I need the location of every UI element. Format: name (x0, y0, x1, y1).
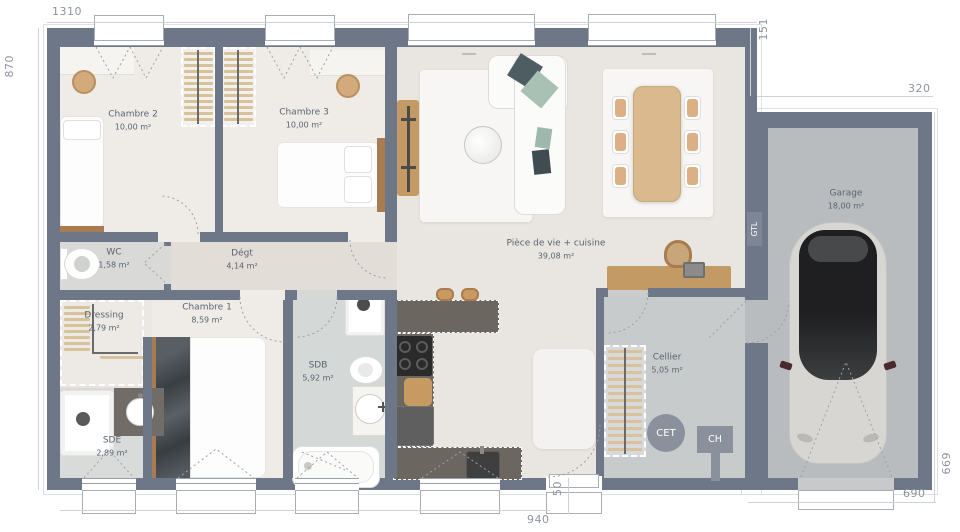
burner (416, 358, 428, 370)
closet-shelf-bar (64, 348, 90, 351)
dining-table (633, 86, 681, 202)
water-heater-cet: CET (647, 414, 685, 452)
wall (385, 300, 397, 478)
wall (596, 288, 604, 478)
ch-label: CH (708, 434, 722, 445)
desk (60, 47, 134, 75)
door-gap (348, 232, 390, 242)
room-name: Chambre 1 (182, 302, 232, 315)
window (265, 15, 335, 41)
dim-height-left: 870 (3, 55, 16, 78)
faucet (480, 446, 484, 454)
boiler-ch: CH (697, 426, 733, 453)
closet-rod (92, 352, 138, 354)
wall (164, 284, 171, 290)
toilet-bowl (74, 256, 90, 272)
laptop (683, 262, 705, 278)
room-area: 10,00 m² (108, 122, 158, 134)
room-name: Pièce de vie + cuisine (507, 238, 606, 251)
door-gap (240, 290, 285, 300)
pillow (344, 146, 372, 173)
dimension-line (568, 478, 569, 514)
wall (283, 300, 293, 478)
dining-chair-seat (687, 133, 698, 151)
wall (200, 232, 348, 242)
room-name: Garage (828, 188, 864, 201)
coffee-table (464, 126, 502, 164)
room-area: 18,00 m² (828, 201, 864, 213)
room-area: 2,89 m² (96, 448, 127, 460)
sink (355, 394, 385, 424)
faucet (382, 402, 384, 412)
boiler-flue (711, 453, 720, 481)
room-label-piece-de-vie: Pièce de vie + cuisine39,08 m² (507, 238, 606, 263)
room-area: 2,79 m² (84, 323, 123, 335)
room-label-chambre3: Chambre 310,00 m² (279, 107, 329, 132)
dimension-line (60, 510, 550, 511)
bathtub-drain (304, 462, 312, 470)
toilet-bowl (358, 363, 373, 377)
room-area: 5,92 m² (302, 373, 333, 385)
closet-shelf-bar (64, 336, 90, 339)
wall (285, 290, 297, 300)
coat-rack-bar (401, 166, 416, 169)
dining-chair-seat (615, 167, 626, 185)
dimension-line (757, 96, 933, 97)
burner (399, 358, 411, 370)
burner (399, 341, 411, 353)
gtl-label: GTL (750, 222, 759, 236)
dressing-opening (143, 300, 152, 337)
room-label-chambre2: Chambre 210,00 m² (108, 109, 158, 134)
room-label-cellier: Cellier5,05 m² (651, 352, 682, 377)
wall (648, 288, 756, 297)
closet-shelf-bar (64, 306, 90, 309)
room-label-sdb: SDB5,92 m² (302, 360, 333, 385)
room-label-dressing: Dressing2,79 m² (84, 310, 123, 335)
sofa-cushion (535, 127, 553, 149)
room-name: Dressing (84, 310, 123, 323)
dim-garage-height-right: 669 (940, 452, 953, 475)
dim-garage-width-bottom: 690 (903, 487, 926, 500)
room-name: WC (98, 247, 129, 260)
dim-door-offset: 50 (551, 481, 564, 496)
wall (164, 242, 171, 246)
dimension-line (934, 112, 935, 502)
floor-plan: CET CH (0, 0, 960, 532)
coat-rack-bar (401, 118, 416, 121)
cutting-board (404, 378, 432, 406)
bay-window (588, 14, 716, 41)
pillow (344, 176, 372, 203)
garage-door (798, 490, 894, 510)
room-area: 1,58 m² (98, 260, 129, 272)
duvet (190, 337, 266, 478)
door-gap (745, 300, 768, 343)
room-area: 39,08 m² (507, 251, 606, 263)
kitchen-counter (393, 447, 522, 480)
wall (604, 288, 608, 297)
closet-shelf-bar (64, 342, 90, 345)
room-label-chambre1: Chambre 18,59 m² (182, 302, 232, 327)
dimension-line (750, 28, 751, 96)
closet-rod (624, 348, 626, 454)
room-label-garage: Garage18,00 m² (828, 188, 864, 213)
wall (215, 47, 223, 232)
sofa-cushion (532, 149, 551, 175)
room-area: 4,14 m² (226, 261, 257, 273)
room-name: SDE (96, 435, 127, 448)
appliance (394, 406, 434, 446)
dimension-line (38, 28, 39, 490)
room-area: 10,00 m² (279, 120, 329, 132)
desk-chair (72, 70, 96, 94)
room-label-degt: Dégt4,14 m² (226, 248, 257, 273)
floor-hall (171, 242, 397, 290)
dim-garage-width-top: 320 (908, 82, 931, 95)
wall (47, 290, 240, 300)
hall-living-opening (385, 242, 397, 290)
wall (337, 290, 397, 300)
dim-offset-right-top: 151 (757, 18, 770, 41)
dimension-line (748, 502, 936, 503)
dining-chair-seat (687, 167, 698, 185)
kitchen-sink (466, 451, 500, 479)
burner (416, 341, 428, 353)
window (94, 15, 164, 41)
wall (47, 232, 158, 242)
gtl-box: GTL (747, 212, 762, 246)
wall (143, 337, 152, 478)
closet-rod (197, 50, 199, 124)
room-name: Chambre 3 (279, 107, 329, 120)
room-name: Dégt (226, 248, 257, 261)
garage-door-opening (798, 478, 894, 490)
room-label-wc: WC1,58 m² (98, 247, 129, 272)
dim-bottom-width: 940 (527, 513, 550, 526)
cet-label: CET (656, 428, 675, 439)
dining-chair-seat (615, 133, 626, 151)
room-label-sde: SDE2,89 m² (96, 435, 127, 460)
room-name: Chambre 2 (108, 109, 158, 122)
wall (385, 47, 397, 242)
door-gap (297, 290, 337, 300)
dimension-line (47, 22, 757, 23)
room-name: Cellier (651, 352, 682, 365)
closet-rod (237, 50, 239, 124)
room-area: 8,59 m² (182, 315, 232, 327)
dining-chair-seat (615, 99, 626, 117)
desk (310, 50, 393, 76)
sideboard-desk (607, 266, 731, 290)
bar-stool (461, 288, 479, 301)
kitchen-counter (393, 300, 499, 333)
dining-chair-seat (687, 99, 698, 117)
door-mat (533, 349, 595, 449)
dim-width-top: 1310 (52, 5, 82, 18)
pillow (63, 120, 101, 140)
desk-chair (336, 74, 360, 98)
shower-drain (76, 412, 90, 426)
car-rear-window (808, 236, 868, 262)
bar-stool (436, 288, 454, 301)
door-gap (164, 246, 171, 284)
room-area: 5,05 m² (651, 365, 682, 377)
room-name: SDB (302, 360, 333, 373)
door-gap (158, 232, 202, 242)
bay-window (408, 14, 535, 41)
